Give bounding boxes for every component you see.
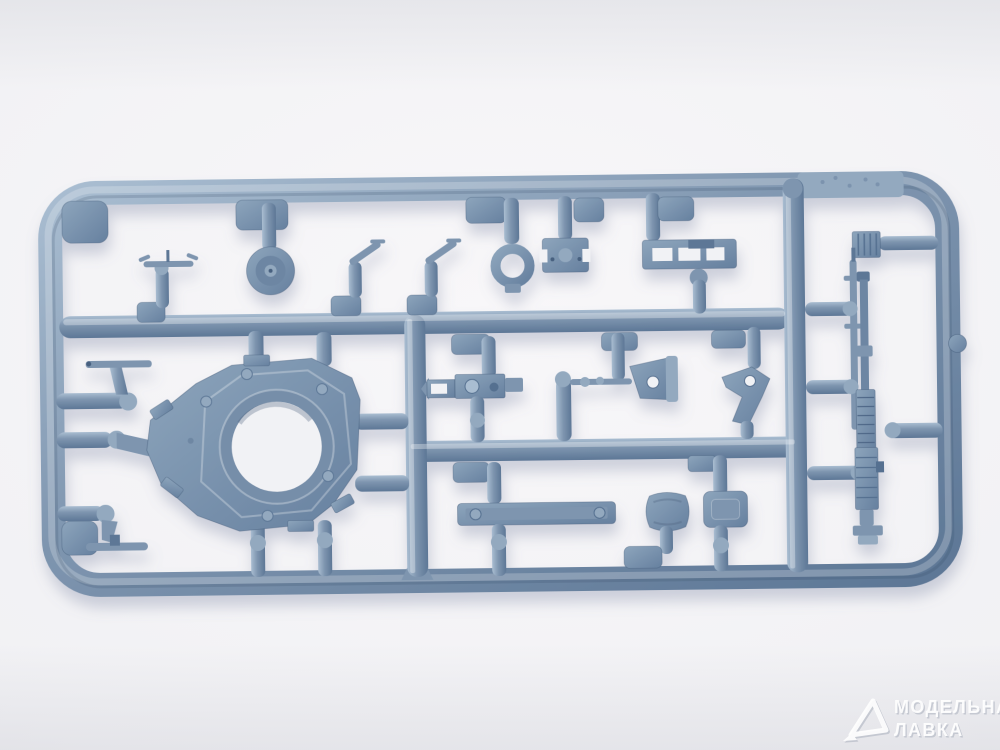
periscope-part <box>424 239 458 265</box>
thin-rod-assembly <box>56 360 153 411</box>
periscope-head <box>446 238 461 242</box>
antenna-mount-assembly <box>136 250 199 323</box>
gun-foot <box>853 525 883 535</box>
receiver-tail <box>505 378 523 392</box>
gun-gas-block <box>857 345 873 356</box>
watermark: МОДЕЛЬНАЯ ЛАВКА МОДЕЛЬНАЯ ЛАВКА <box>843 697 1000 743</box>
branch-runner <box>878 236 938 251</box>
branch-runner <box>354 413 408 430</box>
studio-background: МОДЕЛЬНАЯ ЛАВКА МОДЕЛЬНАЯ ЛАВКА <box>0 0 1000 750</box>
gate-tab <box>331 296 361 316</box>
periscope-assembly-1 <box>330 239 386 316</box>
gate-stub <box>481 336 496 378</box>
gun-side-port <box>876 461 884 472</box>
hatch-ring-part <box>495 249 529 283</box>
barrel-pin <box>851 248 855 262</box>
rail-slot <box>652 248 672 261</box>
rail-slot <box>706 247 724 260</box>
antenna-tip <box>138 254 151 262</box>
strip-face <box>466 507 608 521</box>
periscope-assembly-2 <box>406 238 462 315</box>
gate-tab <box>624 546 662 568</box>
periscope-part <box>348 240 382 266</box>
gate-stub <box>713 455 727 495</box>
gate-stub <box>504 198 520 244</box>
gate-tab <box>574 198 604 222</box>
gun-receiver-upper <box>856 389 876 449</box>
rail-slot <box>678 248 700 261</box>
gate-tab <box>466 197 506 223</box>
mount-bracket-assembly <box>539 196 605 273</box>
gate-stub <box>424 261 437 297</box>
linkage-arm-assembly <box>554 332 678 441</box>
gate-stub <box>740 421 753 439</box>
antenna-pin <box>166 250 169 262</box>
gate-stub <box>747 327 761 369</box>
bracket-notch <box>582 249 590 262</box>
rod-stub <box>110 368 128 395</box>
model-shop-triangle-logo <box>851 701 886 735</box>
joint-neck <box>117 432 151 456</box>
bracket-end-plate <box>666 356 679 402</box>
link-bead <box>580 377 590 387</box>
periscope-head <box>370 239 385 243</box>
gate-stub <box>487 462 502 504</box>
hatch-recess <box>711 499 739 519</box>
octagon-left-branch <box>57 430 151 457</box>
gate-tab <box>711 330 745 348</box>
branch-runner <box>56 393 128 410</box>
strip-end-disc <box>594 507 605 518</box>
branch-runner <box>355 475 409 492</box>
watermark-line1: МОДЕЛЬНАЯ <box>894 697 1000 717</box>
gate-tab <box>453 462 489 482</box>
sprue-photo: МОДЕЛЬНАЯ ЛАВКА МОДЕЛЬНАЯ ЛАВКА <box>0 0 1000 750</box>
bracket-notch <box>539 249 547 262</box>
gate-stub <box>316 332 331 366</box>
hatch-panel-assembly <box>688 455 748 572</box>
frame-knob <box>948 334 966 352</box>
gun-grip <box>860 509 874 525</box>
gate-tab <box>688 455 716 471</box>
watermark-line2: ЛАВКА <box>894 720 964 740</box>
gun-base-bit <box>858 535 878 544</box>
tow-hook-part <box>722 367 771 426</box>
machine-gun-cluster <box>804 231 944 546</box>
gate-tab <box>407 295 437 315</box>
antenna-tip <box>186 253 199 261</box>
strip-end-disc <box>470 509 481 520</box>
gate-stub <box>693 279 706 313</box>
bracket-hole <box>647 376 659 388</box>
gate-stub <box>611 332 625 380</box>
slotted-rail-assembly <box>642 192 737 314</box>
gate-tab <box>658 197 694 221</box>
wheel-disc-assembly <box>236 200 295 296</box>
rail-shadow-detail <box>688 239 714 248</box>
gate-stub <box>558 196 573 240</box>
gun-barrel <box>860 279 869 393</box>
hatch-ring-assembly <box>466 197 530 294</box>
branch-runner <box>57 432 113 449</box>
fork-slot <box>431 384 447 394</box>
hatch-ring-bracket <box>505 284 521 293</box>
corner-gusset-top-left <box>62 201 109 244</box>
gun-receiver-lower <box>855 447 879 509</box>
hinge-stub <box>110 535 120 546</box>
thin-rod-part <box>86 360 152 368</box>
tow-hook-assembly <box>711 327 770 440</box>
receiver-hole-large <box>465 379 479 393</box>
cushion-pad-assembly <box>623 492 689 568</box>
gate-stub <box>348 262 361 298</box>
hook-hole <box>744 375 755 386</box>
sprue <box>47 170 969 587</box>
mg-receiver-assembly <box>420 334 523 443</box>
arm-post <box>556 379 572 441</box>
fender-strip-assembly <box>453 461 616 577</box>
turret-ring-assembly <box>145 329 410 578</box>
gate-stub <box>262 203 277 251</box>
